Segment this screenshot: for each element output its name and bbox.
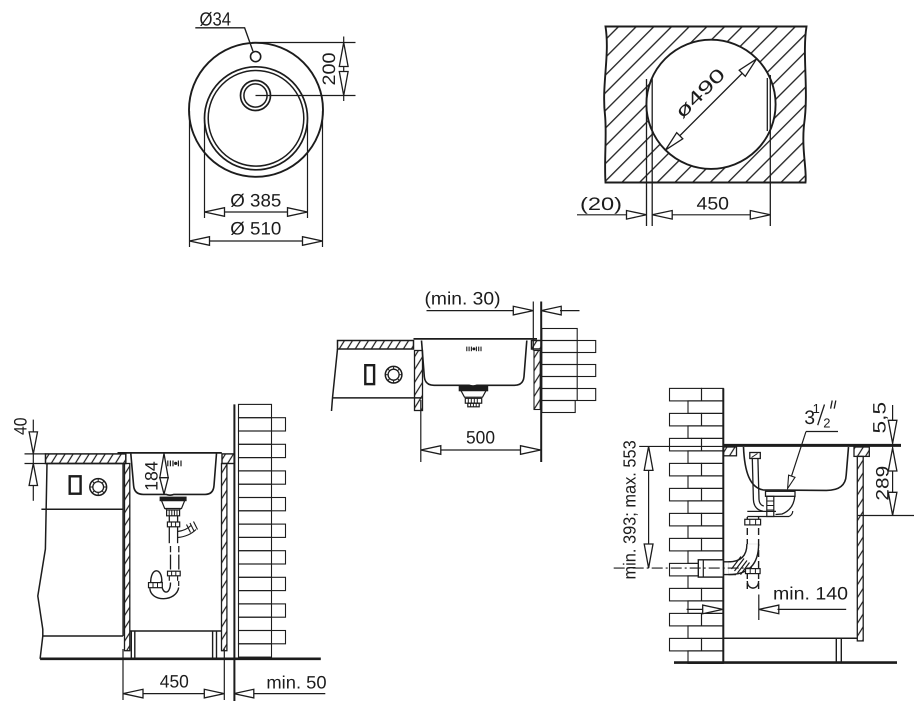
svg-text:(20): (20) xyxy=(580,194,622,214)
svg-text:184: 184 xyxy=(141,461,161,491)
svg-text:40: 40 xyxy=(10,417,30,435)
svg-text:450: 450 xyxy=(697,194,730,214)
svg-text:2: 2 xyxy=(823,416,830,431)
svg-text:1: 1 xyxy=(813,401,820,416)
svg-text:min. 393; max. 553: min. 393; max. 553 xyxy=(620,440,640,579)
svg-text:200: 200 xyxy=(319,53,339,86)
svg-text:450: 450 xyxy=(160,672,189,692)
svg-text:5,5: 5,5 xyxy=(869,402,889,434)
svg-text:Ø 385: Ø 385 xyxy=(230,191,281,211)
svg-text:500: 500 xyxy=(466,428,495,448)
svg-text:(min. 30): (min. 30) xyxy=(425,289,501,309)
svg-text:min. 50: min. 50 xyxy=(266,673,326,693)
svg-text:Ø 510: Ø 510 xyxy=(230,219,281,239)
svg-text:min. 140: min. 140 xyxy=(773,584,848,604)
